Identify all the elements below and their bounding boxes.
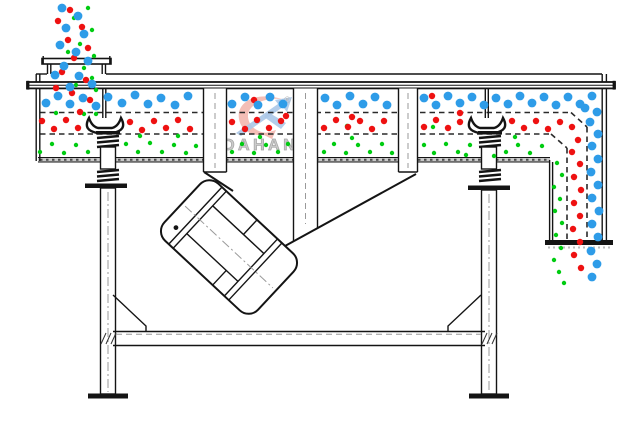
particle-green bbox=[422, 143, 426, 147]
particle-red bbox=[357, 118, 363, 124]
particle-blue bbox=[60, 62, 69, 71]
particle-blue bbox=[62, 24, 71, 33]
particle-blue bbox=[552, 101, 561, 110]
divider-channel-1 bbox=[204, 89, 227, 173]
particle-blue bbox=[594, 155, 603, 164]
particle-red bbox=[77, 109, 83, 115]
particle-blue bbox=[540, 93, 549, 102]
particle-blue bbox=[279, 100, 288, 109]
particle-green bbox=[554, 233, 558, 237]
particle-green bbox=[276, 150, 280, 154]
spring-upper-right bbox=[479, 136, 501, 147]
particle-red bbox=[381, 118, 387, 124]
particle-blue bbox=[564, 93, 573, 102]
particle-green bbox=[160, 150, 164, 154]
particle-blue bbox=[588, 273, 597, 282]
particle-green bbox=[431, 125, 435, 129]
particle-blue bbox=[516, 92, 525, 101]
particle-blue bbox=[66, 83, 75, 92]
particle-green bbox=[560, 221, 564, 225]
particle-red bbox=[65, 37, 71, 43]
particle-red bbox=[569, 149, 575, 155]
particle-red bbox=[242, 126, 248, 132]
particle-green bbox=[86, 150, 90, 154]
particle-blue bbox=[588, 220, 597, 229]
leg-brace-right bbox=[448, 295, 481, 332]
particle-green bbox=[558, 197, 562, 201]
spring-seat-cup-right bbox=[469, 118, 505, 133]
particle-blue bbox=[104, 93, 113, 102]
particle-green bbox=[464, 153, 468, 157]
particle-green bbox=[380, 142, 384, 146]
particle-green bbox=[66, 50, 70, 54]
particle-green bbox=[286, 142, 290, 146]
particle-green bbox=[559, 246, 563, 250]
particle-red bbox=[79, 24, 85, 30]
particle-red bbox=[187, 126, 193, 132]
particle-green bbox=[38, 150, 42, 154]
spring-upper-left bbox=[97, 136, 119, 147]
particle-blue bbox=[157, 94, 166, 103]
particle-green bbox=[240, 142, 244, 146]
particle-red bbox=[570, 226, 576, 232]
particle-blue bbox=[74, 12, 83, 21]
particle-red bbox=[557, 119, 563, 125]
particle-red bbox=[349, 114, 355, 120]
box-right-wall bbox=[602, 74, 606, 243]
particle-green bbox=[50, 142, 54, 146]
particle-blue bbox=[54, 92, 63, 101]
particle-red bbox=[457, 110, 463, 116]
spring-lower-left bbox=[97, 170, 119, 181]
particle-red bbox=[575, 137, 581, 143]
particle-blue bbox=[75, 72, 84, 81]
particle-blue bbox=[333, 101, 342, 110]
particle-blue bbox=[80, 30, 89, 39]
particle-green bbox=[252, 151, 256, 155]
particle-red bbox=[127, 119, 133, 125]
particle-red bbox=[577, 213, 583, 219]
particle-red bbox=[571, 252, 577, 258]
particle-blue bbox=[594, 233, 603, 242]
particle-red bbox=[533, 118, 539, 124]
particle-green bbox=[557, 270, 561, 274]
particle-green bbox=[368, 150, 372, 154]
particle-blue bbox=[56, 41, 65, 50]
particle-green bbox=[184, 151, 188, 155]
particle-blue bbox=[131, 91, 140, 100]
particle-red bbox=[39, 118, 45, 124]
particle-blue bbox=[84, 57, 93, 66]
particle-green bbox=[74, 143, 78, 147]
particle-red bbox=[254, 117, 260, 123]
particle-red bbox=[429, 93, 435, 99]
particle-green bbox=[148, 141, 152, 145]
particle-green bbox=[138, 134, 142, 138]
particle-green bbox=[560, 173, 564, 177]
particle-blue bbox=[241, 93, 250, 102]
particle-green bbox=[90, 76, 94, 80]
particle-blue bbox=[359, 100, 368, 109]
particle-blue bbox=[254, 101, 263, 110]
particle-blue bbox=[72, 48, 81, 57]
particle-red bbox=[445, 125, 451, 131]
particle-red bbox=[578, 187, 584, 193]
particle-blue bbox=[58, 4, 67, 13]
particle-green bbox=[92, 54, 96, 58]
particle-red bbox=[151, 118, 157, 124]
particle-green bbox=[456, 150, 460, 154]
particle-green bbox=[94, 112, 98, 116]
particle-red bbox=[545, 126, 551, 132]
particle-green bbox=[552, 185, 556, 189]
particle-green bbox=[78, 42, 82, 46]
particle-red bbox=[509, 118, 515, 124]
particle-blue bbox=[480, 101, 489, 110]
particle-red bbox=[87, 97, 93, 103]
particle-red bbox=[85, 45, 91, 51]
top-rail bbox=[26, 81, 615, 90]
particle-blue bbox=[321, 94, 330, 103]
particle-blue bbox=[228, 100, 237, 109]
particle-red bbox=[577, 161, 583, 167]
particle-red bbox=[421, 124, 427, 130]
particle-green bbox=[432, 151, 436, 155]
particle-green bbox=[344, 151, 348, 155]
particle-green bbox=[62, 151, 66, 155]
particle-blue bbox=[588, 194, 597, 203]
particle-green bbox=[194, 144, 198, 148]
particle-blue bbox=[432, 101, 441, 110]
particle-green bbox=[332, 142, 336, 146]
particle-blue bbox=[79, 94, 88, 103]
particle-red bbox=[521, 125, 527, 131]
particle-red bbox=[51, 126, 57, 132]
particle-red bbox=[266, 125, 272, 131]
particle-red bbox=[333, 117, 339, 123]
particle-blue bbox=[588, 142, 597, 151]
particle-green bbox=[124, 142, 128, 146]
particle-red bbox=[229, 119, 235, 125]
support-strut-left bbox=[101, 147, 116, 169]
particle-blue bbox=[593, 260, 602, 269]
particle-red bbox=[457, 119, 463, 125]
particle-green bbox=[513, 135, 517, 139]
particle-red bbox=[433, 117, 439, 123]
particle-blue bbox=[581, 104, 590, 113]
particle-red bbox=[569, 124, 575, 130]
particle-red bbox=[55, 18, 61, 24]
particle-green bbox=[94, 88, 98, 92]
particle-red bbox=[63, 117, 69, 123]
particle-green bbox=[468, 143, 472, 147]
particle-red bbox=[53, 85, 59, 91]
particle-blue bbox=[171, 101, 180, 110]
particle-green bbox=[390, 151, 394, 155]
particle-green bbox=[504, 150, 508, 154]
particle-green bbox=[86, 6, 90, 10]
particle-green bbox=[136, 150, 140, 154]
foot-pad-left bbox=[88, 394, 128, 399]
particle-red bbox=[345, 124, 351, 130]
particle-green bbox=[172, 143, 176, 147]
particle-blue bbox=[588, 92, 597, 101]
particle-red bbox=[578, 265, 584, 271]
particle-green bbox=[492, 154, 496, 158]
particle-blue bbox=[468, 93, 477, 102]
particle-blue bbox=[420, 94, 429, 103]
particle-red bbox=[175, 117, 181, 123]
support-leg-left bbox=[88, 188, 128, 399]
particle-green bbox=[356, 143, 360, 147]
particle-red bbox=[577, 239, 583, 245]
particle-green bbox=[444, 142, 448, 146]
particle-green bbox=[555, 161, 559, 165]
particle-green bbox=[322, 150, 326, 154]
base-beam bbox=[101, 332, 497, 346]
particle-red bbox=[163, 125, 169, 131]
particle-blue bbox=[587, 247, 596, 256]
particle-green bbox=[562, 281, 566, 285]
particle-green bbox=[264, 143, 268, 147]
particle-red bbox=[571, 174, 577, 180]
particle-blue bbox=[51, 71, 60, 80]
support-leg-right bbox=[469, 190, 509, 399]
particle-green bbox=[350, 136, 354, 140]
particle-blue bbox=[371, 93, 380, 102]
vibrating-screen-diagram: DAHAN ® bbox=[0, 0, 638, 428]
particle-red bbox=[278, 118, 284, 124]
particle-green bbox=[528, 151, 532, 155]
particle-blue bbox=[587, 168, 596, 177]
particle-blue bbox=[586, 118, 595, 127]
particle-green bbox=[258, 135, 262, 139]
particle-green bbox=[54, 111, 58, 115]
divider-channel-2 bbox=[294, 89, 318, 242]
vibration-motor bbox=[156, 175, 303, 319]
particle-blue bbox=[595, 207, 604, 216]
particle-blue bbox=[92, 102, 101, 111]
particle-blue bbox=[118, 99, 127, 108]
particle-green bbox=[552, 258, 556, 262]
particle-green bbox=[230, 150, 234, 154]
particle-green bbox=[74, 83, 78, 87]
particle-blue bbox=[444, 92, 453, 101]
leg-brace-left bbox=[113, 295, 146, 332]
spring-seat-cup-left bbox=[87, 118, 123, 133]
particle-blue bbox=[88, 80, 97, 89]
particle-green bbox=[516, 143, 520, 147]
spring-lower-right bbox=[479, 170, 501, 181]
divider-channel-3 bbox=[399, 89, 418, 173]
particle-green bbox=[82, 66, 86, 70]
particle-green bbox=[540, 144, 544, 148]
particle-blue bbox=[593, 108, 602, 117]
spring-top-plate-right bbox=[478, 131, 502, 135]
particle-red bbox=[75, 125, 81, 131]
particle-blue bbox=[492, 94, 501, 103]
particle-red bbox=[321, 125, 327, 131]
particle-green bbox=[90, 28, 94, 32]
particle-blue bbox=[594, 181, 603, 190]
foot-pad-right bbox=[469, 394, 509, 399]
particle-red bbox=[139, 127, 145, 133]
particle-blue bbox=[504, 100, 513, 109]
particle-blue bbox=[383, 101, 392, 110]
particle-green bbox=[176, 134, 180, 138]
particle-blue bbox=[184, 92, 193, 101]
particle-red bbox=[571, 200, 577, 206]
spring-top-plate-left bbox=[96, 131, 120, 135]
particle-green bbox=[553, 209, 557, 213]
particle-blue bbox=[144, 100, 153, 109]
particle-blue bbox=[346, 92, 355, 101]
particle-blue bbox=[456, 99, 465, 108]
particle-blue bbox=[266, 93, 275, 102]
particle-red bbox=[369, 126, 375, 132]
particle-blue bbox=[42, 99, 51, 108]
particle-blue bbox=[528, 99, 537, 108]
particle-blue bbox=[66, 100, 75, 109]
particle-red bbox=[283, 113, 289, 119]
particle-blue bbox=[594, 130, 603, 139]
particle-red bbox=[67, 7, 73, 13]
